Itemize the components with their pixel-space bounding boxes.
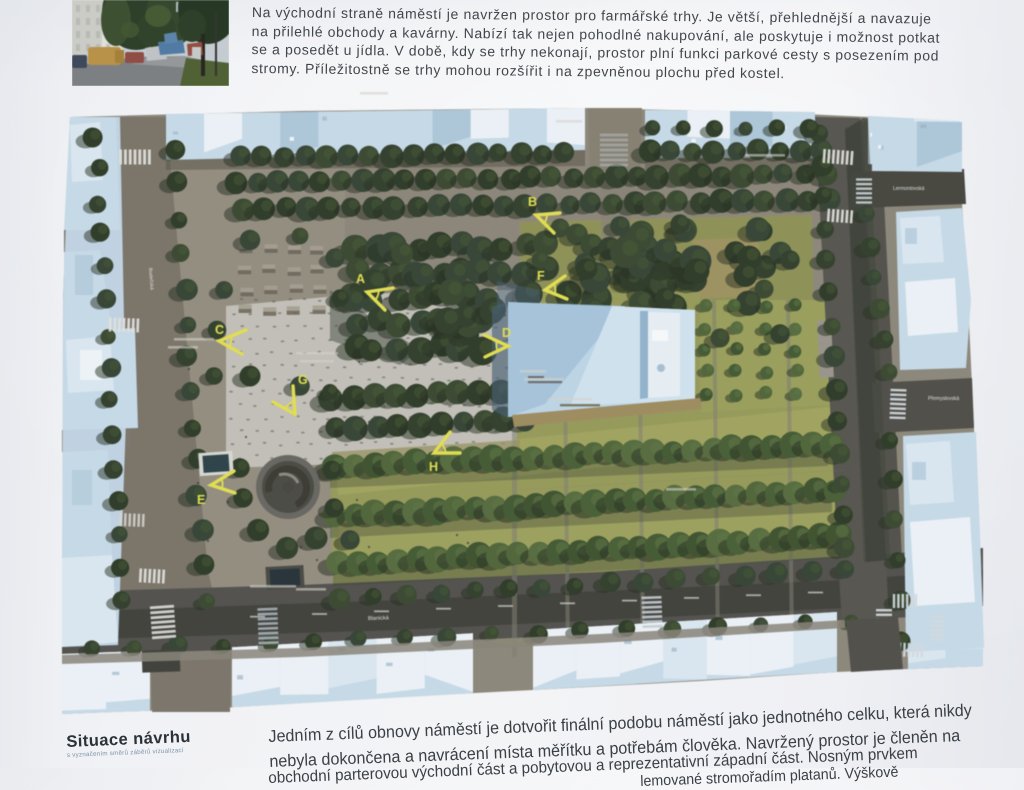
svg-text:H: H [429,460,438,474]
svg-text:C: C [215,323,224,337]
svg-text:A: A [356,272,365,286]
svg-text:Blanická: Blanická [368,615,390,622]
svg-text:D: D [502,326,511,340]
svg-text:B: B [528,195,537,209]
svg-text:Přemyslovská: Přemyslovská [928,396,959,402]
svg-text:F: F [537,269,545,283]
svg-text:E: E [197,493,205,507]
svg-text:G: G [298,373,308,387]
svg-text:Lermontovská: Lermontovská [893,186,925,192]
